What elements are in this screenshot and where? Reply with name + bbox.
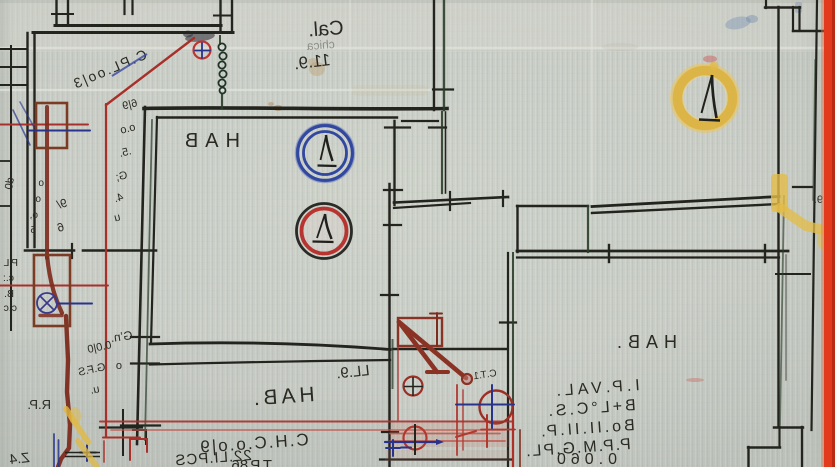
svg-text:0.060: 0.060 (552, 451, 617, 467)
svg-text:o,: o, (30, 210, 38, 221)
svg-text:d0: d0 (3, 176, 17, 190)
svg-text:R.P.: R.P. (27, 397, 51, 412)
svg-text:HAB.: HAB. (249, 383, 315, 410)
svg-text:o,: o, (33, 194, 41, 205)
svg-text:c.:: c.: (3, 272, 14, 284)
svg-text:o: o (38, 178, 44, 189)
svg-text:T.P.86: T.P.86 (231, 457, 272, 467)
svg-text:o: o (116, 360, 122, 372)
svg-text:Z.4: Z.4 (8, 449, 30, 467)
svg-text:LL.9.: LL.9. (335, 362, 370, 382)
svg-text:HAB: HAB (178, 130, 240, 152)
svg-text:5: 5 (30, 225, 36, 236)
svg-text:P.L: P.L (3, 257, 18, 269)
svg-text:c.c: c.c (4, 302, 17, 314)
svg-text:B.: B. (4, 288, 14, 300)
svg-text:HAB.: HAB. (611, 332, 677, 352)
